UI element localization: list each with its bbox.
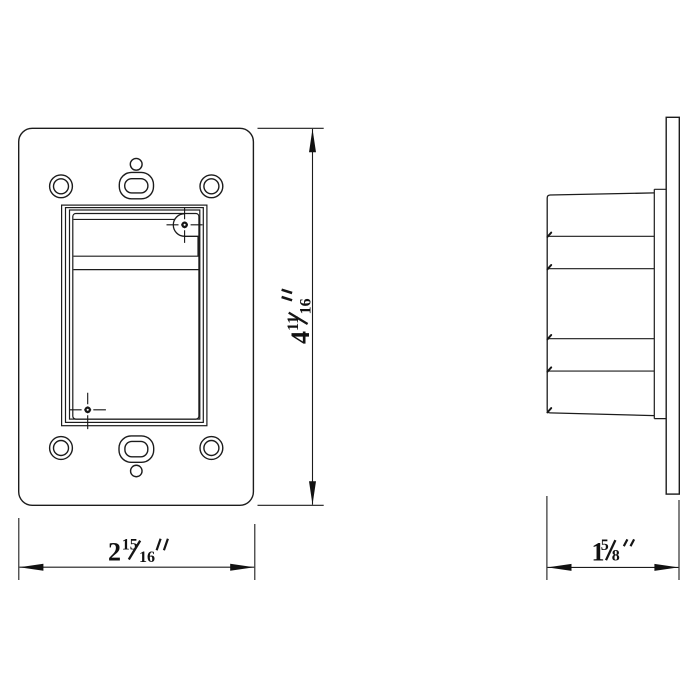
svg-text:5: 5 (601, 537, 609, 554)
svg-text:8: 8 (612, 548, 620, 565)
svg-text:4: 4 (286, 331, 315, 344)
svg-text:16: 16 (139, 549, 155, 566)
svg-text:16: 16 (298, 298, 315, 314)
svg-text:15: 15 (122, 537, 138, 554)
svg-text:2: 2 (108, 538, 121, 567)
